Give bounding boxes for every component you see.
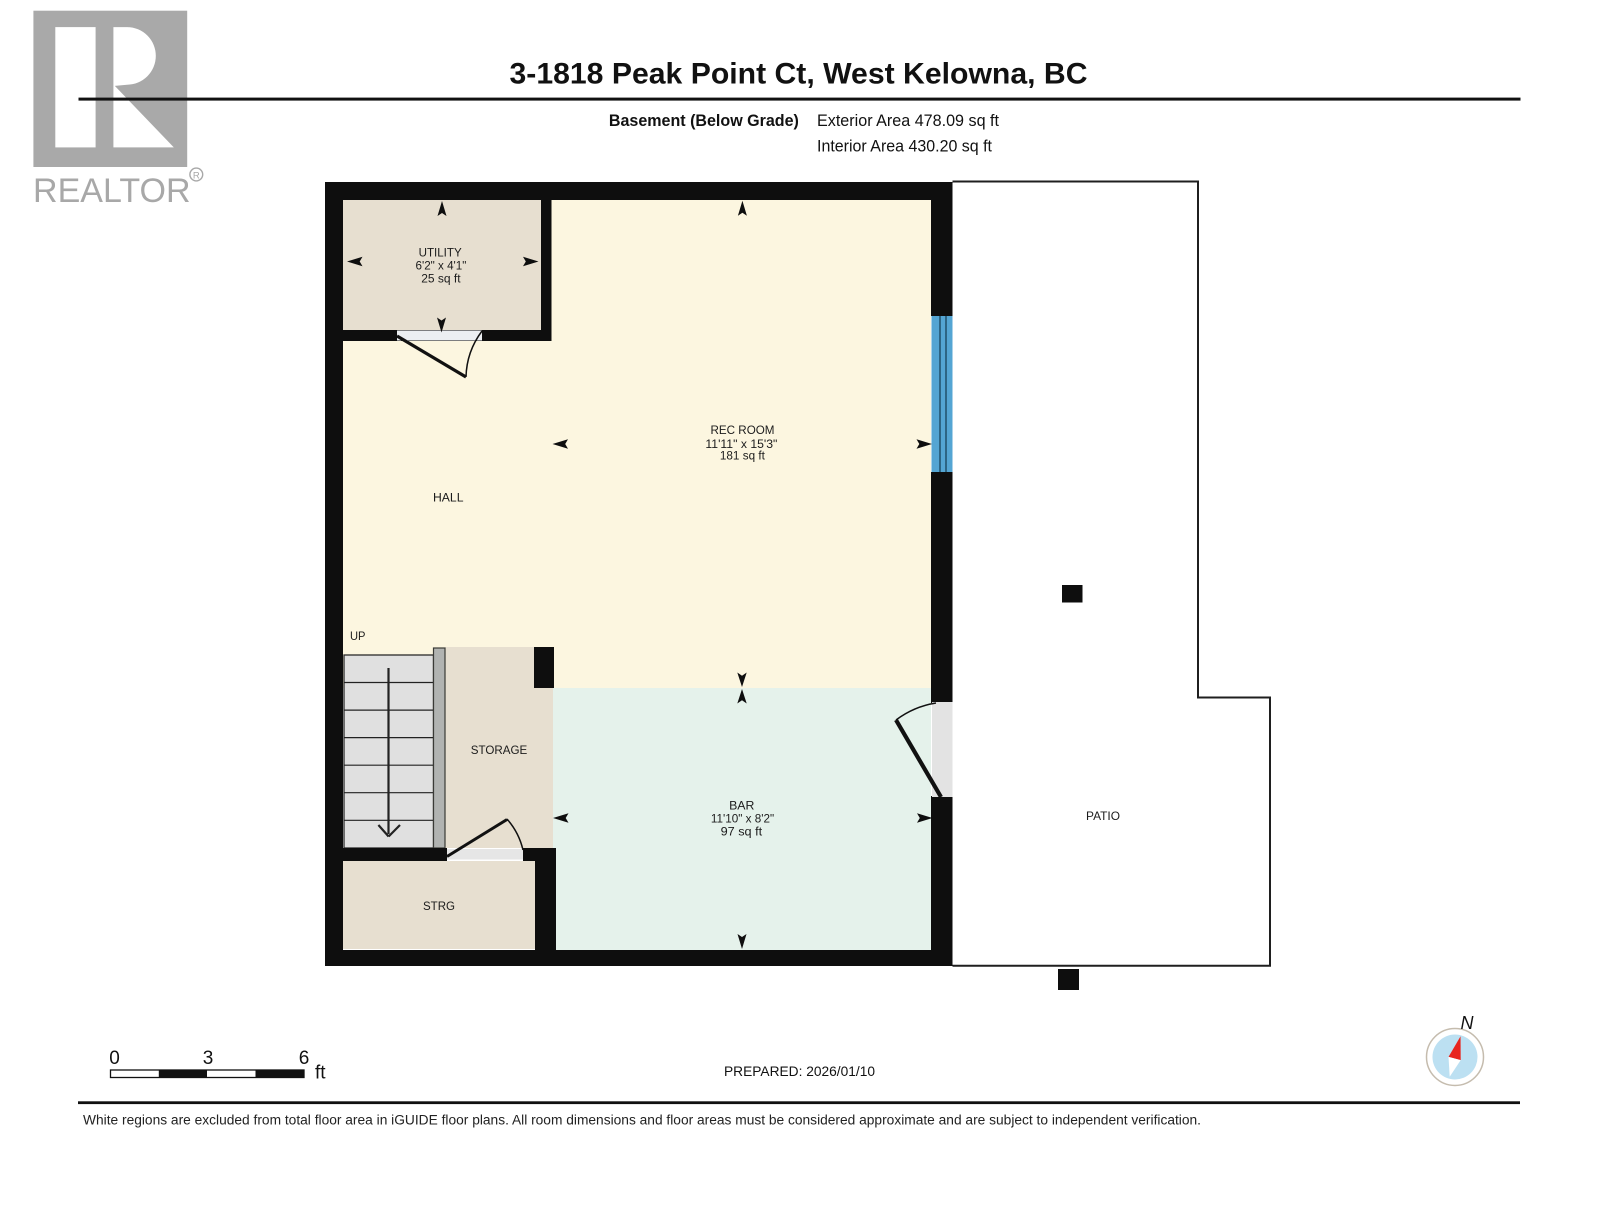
- svg-text:25 sq ft: 25 sq ft: [421, 271, 461, 285]
- svg-text:STORAGE: STORAGE: [471, 743, 528, 757]
- svg-text:181 sq ft: 181 sq ft: [720, 449, 766, 463]
- svg-text:3: 3: [203, 1048, 214, 1069]
- svg-text:6'2" x 4'1": 6'2" x 4'1": [416, 258, 467, 272]
- svg-text:Exterior Area 478.09 sq ft: Exterior Area 478.09 sq ft: [817, 111, 999, 130]
- svg-text:PATIO: PATIO: [1086, 809, 1120, 823]
- svg-text:STRG: STRG: [423, 899, 455, 913]
- svg-text:11'10" x 8'2": 11'10" x 8'2": [711, 812, 774, 826]
- svg-text:BAR: BAR: [729, 799, 754, 813]
- svg-text:REALTOR: REALTOR: [33, 172, 191, 210]
- svg-text:0: 0: [109, 1048, 120, 1069]
- svg-text:PREPARED: 2026/01/10: PREPARED: 2026/01/10: [724, 1063, 875, 1079]
- svg-text:6: 6: [299, 1048, 310, 1069]
- svg-text:R: R: [193, 171, 200, 182]
- svg-text:Basement (Below Grade): Basement (Below Grade): [609, 111, 799, 130]
- svg-text:97 sq ft: 97 sq ft: [721, 825, 763, 839]
- svg-text:N: N: [1461, 1013, 1475, 1033]
- svg-text:3-1818 Peak Point Ct, West Kel: 3-1818 Peak Point Ct, West Kelowna, BC: [510, 58, 1088, 91]
- svg-text:White regions are excluded fro: White regions are excluded from total fl…: [83, 1113, 1201, 1128]
- svg-text:REC ROOM: REC ROOM: [711, 423, 775, 437]
- svg-text:Interior Area 430.20 sq ft: Interior Area 430.20 sq ft: [817, 136, 992, 155]
- svg-text:HALL: HALL: [433, 491, 464, 505]
- svg-text:ft: ft: [315, 1063, 326, 1084]
- svg-text:UTILITY: UTILITY: [419, 245, 462, 259]
- svg-text:UP: UP: [350, 629, 366, 643]
